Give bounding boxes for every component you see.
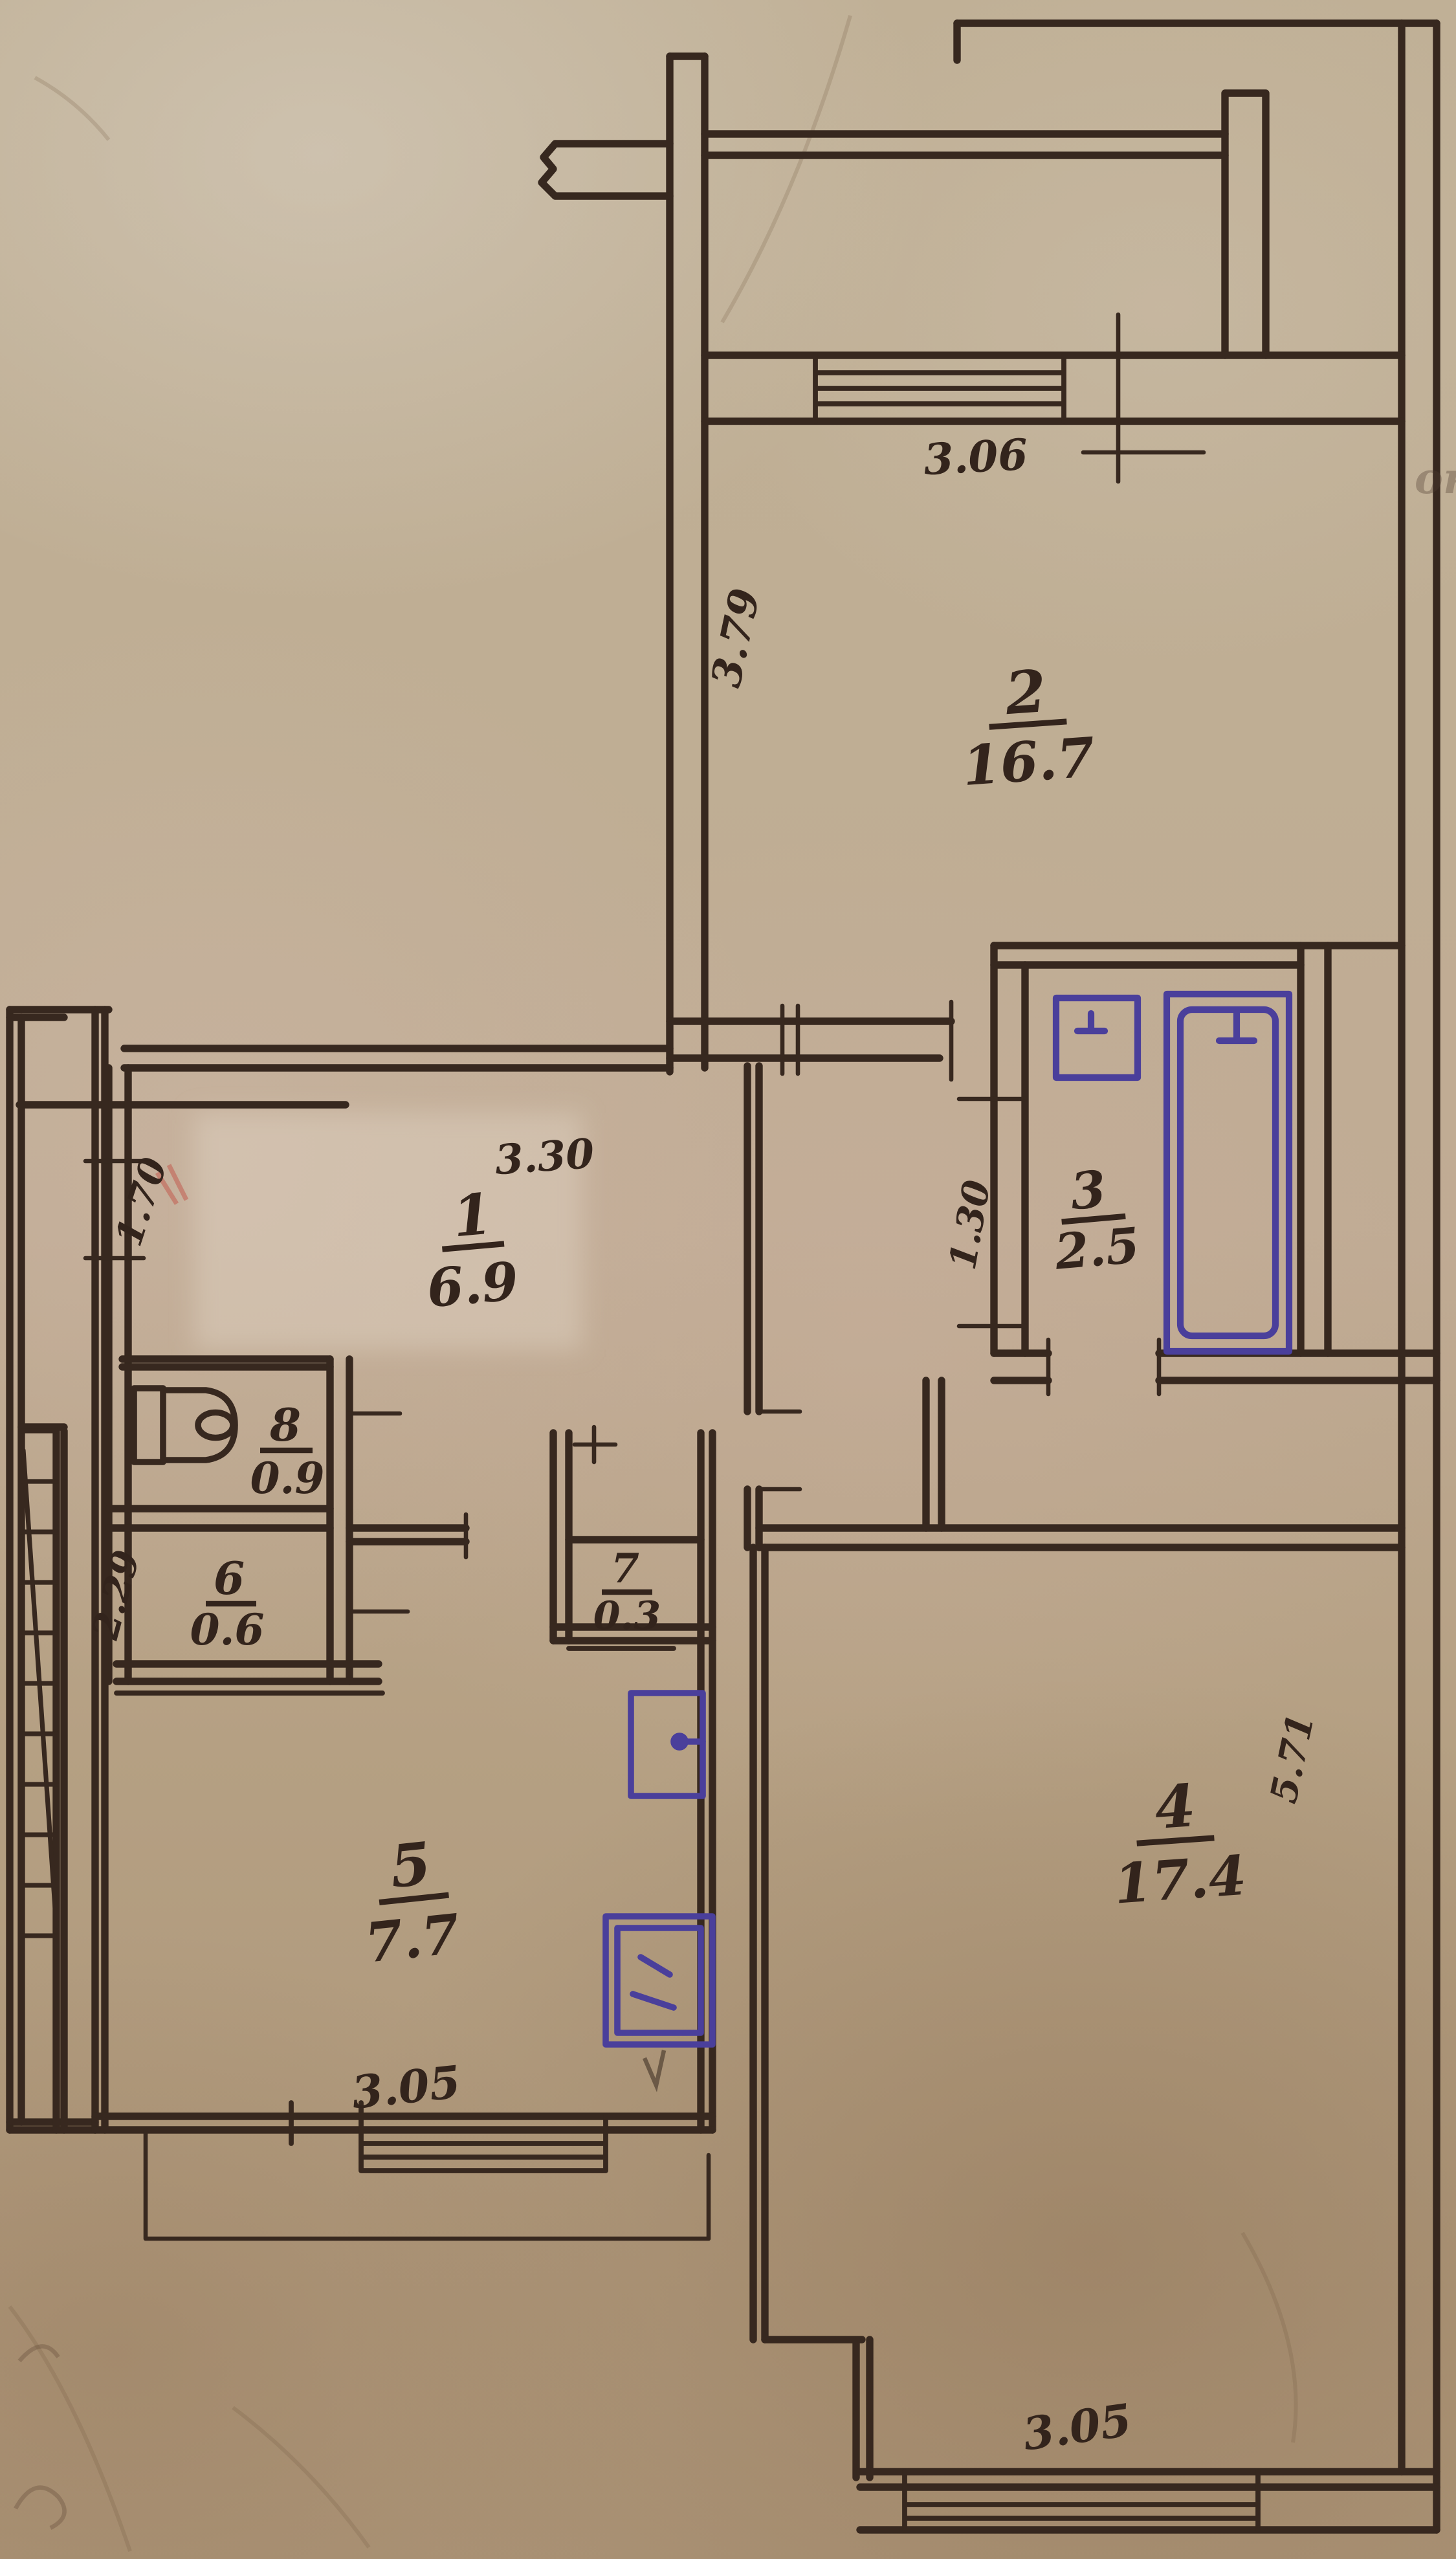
room2-area: 16.7 bbox=[960, 725, 1097, 798]
window-room2 bbox=[815, 355, 1064, 421]
wall-room4-top bbox=[759, 1528, 1402, 1547]
window-room4 bbox=[905, 2472, 1258, 2530]
room5-number: 5 bbox=[387, 1829, 434, 1901]
marginalia-right: он bbox=[1415, 453, 1456, 504]
floor-plan-scan: 2 16.7 3.06 3.79 1 6.9 3.30 1.70 3 2.5 1… bbox=[0, 0, 1456, 2559]
wall-toilet-bottom bbox=[109, 1509, 330, 1528]
wall-room2-bottom bbox=[670, 1021, 951, 1058]
room1-number: 1 bbox=[450, 1180, 494, 1250]
stair-diagonal bbox=[23, 1450, 56, 1926]
wall-toilet-right bbox=[330, 1359, 349, 1681]
room6-number: 6 bbox=[214, 1553, 245, 1605]
dim-room1-top: 3.30 bbox=[493, 1129, 595, 1184]
room5-area: 7.7 bbox=[362, 1901, 463, 1975]
floor-plan-drawing: 2 16.7 3.06 3.79 1 6.9 3.30 1.70 3 2.5 1… bbox=[0, 0, 1456, 2559]
wall-corridor-right bbox=[747, 1066, 759, 1547]
kitchen-sink-icon bbox=[631, 1693, 703, 1796]
room2-label: 2 16.7 bbox=[955, 654, 1097, 798]
dim-room1-left: 1.70 bbox=[107, 1152, 176, 1251]
wall-room7-left bbox=[553, 1433, 569, 1641]
room3-label: 3 2.5 bbox=[1047, 1157, 1142, 1281]
wall-stair-outer bbox=[10, 1010, 21, 2130]
staircase bbox=[21, 1431, 56, 1936]
wall-room3-top bbox=[994, 946, 1402, 965]
room3-area: 2.5 bbox=[1052, 1217, 1142, 1281]
wall-kitchen-top bbox=[349, 1528, 466, 1542]
stove-icon bbox=[606, 1916, 712, 2044]
labels: 2 16.7 3.06 3.79 1 6.9 3.30 1.70 3 2.5 1… bbox=[83, 429, 1456, 2461]
room7-label: 7 0.3 bbox=[593, 1544, 661, 1639]
wall-room4-left bbox=[753, 1547, 765, 2340]
balcony-outline bbox=[146, 2130, 709, 2239]
kitchen-fixtures bbox=[606, 1693, 712, 2044]
wall-room4-step bbox=[765, 2340, 870, 2477]
room6-area: 0.6 bbox=[190, 1604, 265, 1655]
room8-area: 0.9 bbox=[250, 1453, 325, 1503]
wall-stub bbox=[542, 144, 670, 196]
stray-pen-scribbles bbox=[16, 2346, 65, 2528]
room7-number: 7 bbox=[611, 1544, 639, 1592]
wall-room3-shaft bbox=[1301, 946, 1328, 1353]
room2-fraction-line bbox=[989, 722, 1067, 727]
dim-room4-right: 5.71 bbox=[1262, 1710, 1323, 1807]
bathtub-icon bbox=[1167, 994, 1289, 1351]
room5-fraction-line bbox=[379, 1895, 448, 1902]
room6-label: 6 0.6 bbox=[190, 1553, 265, 1655]
wall-toilet-top bbox=[122, 1359, 330, 1367]
room2-number: 2 bbox=[1002, 657, 1048, 728]
door-swing-mark bbox=[645, 2050, 664, 2085]
room4-label: 4 17.4 bbox=[1107, 1768, 1248, 1916]
wall-room3-bottom bbox=[994, 1353, 1437, 1380]
dim-room2-top: 3.06 bbox=[922, 429, 1029, 485]
wall-shaft-top bbox=[705, 134, 1225, 155]
dim-room5-bottom: 3.05 bbox=[349, 2056, 463, 2120]
wall-room1-top bbox=[124, 1048, 670, 1068]
room5-label: 5 7.7 bbox=[354, 1827, 463, 1975]
wall-room3-left bbox=[994, 946, 1025, 1353]
room4-number: 4 bbox=[1153, 1771, 1198, 1843]
wall-shaft-right bbox=[1225, 93, 1266, 355]
room4-area: 17.4 bbox=[1112, 1843, 1248, 1916]
dim-room4-bottom: 3.05 bbox=[1020, 2394, 1135, 2461]
sink-icon bbox=[1056, 998, 1138, 1078]
wall-stair-stringer bbox=[56, 1431, 64, 2130]
dim-room2-left: 3.79 bbox=[701, 584, 769, 691]
room3-number: 3 bbox=[1068, 1160, 1109, 1221]
room4-fraction-line bbox=[1137, 1838, 1215, 1843]
wall-kitchen-bottom bbox=[95, 2116, 712, 2130]
wall-room4-bottom bbox=[860, 2472, 1437, 2530]
room8-label: 8 0.9 bbox=[250, 1399, 325, 1503]
room7-area: 0.3 bbox=[593, 1593, 661, 1639]
room8-number: 8 bbox=[269, 1399, 301, 1452]
room1-area: 6.9 bbox=[425, 1250, 521, 1320]
wall-room6-bottom bbox=[116, 1664, 379, 1681]
toilet-icon bbox=[134, 1388, 235, 1462]
wall-vestibule bbox=[926, 1380, 942, 1528]
